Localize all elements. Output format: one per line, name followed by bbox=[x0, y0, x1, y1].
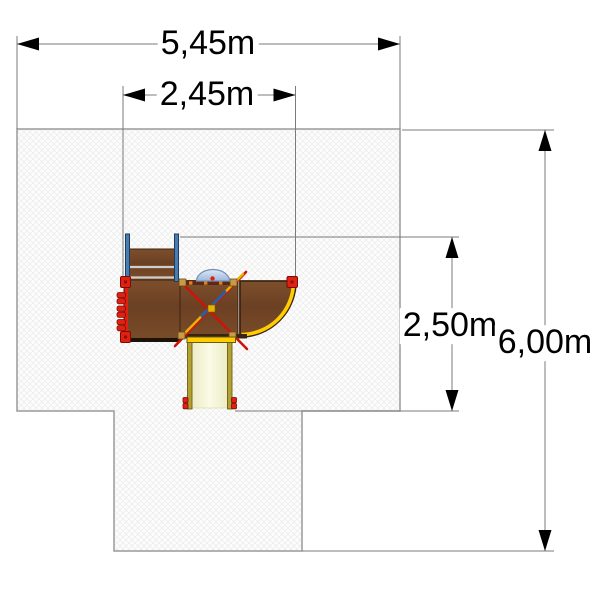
arrow-right-245-icon bbox=[274, 89, 296, 102]
arrow-down-250-icon bbox=[446, 390, 459, 411]
dimension-drawing bbox=[0, 0, 600, 600]
dim-label-structure-width: 2,45m bbox=[157, 77, 258, 113]
slide-foot bbox=[183, 398, 188, 403]
corner-plate bbox=[230, 279, 237, 286]
ladder-rail-right bbox=[175, 234, 179, 282]
arrow-left-245-icon bbox=[123, 89, 145, 102]
left-deck bbox=[124, 279, 180, 341]
arrow-right-545-icon bbox=[378, 38, 400, 51]
handle-knob bbox=[117, 312, 126, 317]
dim-label-total-depth: 6,00m bbox=[495, 325, 596, 361]
rail-clip bbox=[219, 281, 222, 284]
plan-canvas: 5,45m 2,45m 2,50m 6,00m bbox=[0, 0, 600, 600]
rail-clip bbox=[204, 281, 207, 284]
slide-foot bbox=[183, 404, 188, 409]
dim-label-total-width: 5,45m bbox=[158, 26, 259, 62]
dim-label-structure-depth: 2,50m bbox=[400, 308, 501, 344]
corner-plate bbox=[178, 332, 185, 339]
arrow-left-545-icon bbox=[17, 38, 39, 51]
arrow-up-600-icon bbox=[539, 130, 552, 151]
slide-entry-bar bbox=[187, 337, 236, 343]
corner-plate bbox=[179, 279, 186, 286]
slide-foot bbox=[232, 398, 237, 403]
arrow-up-250-icon bbox=[446, 237, 459, 258]
slide-bed bbox=[192, 342, 228, 408]
post-bolt bbox=[291, 281, 294, 284]
rail-clip bbox=[189, 281, 192, 284]
ladder-rail-left bbox=[126, 234, 130, 282]
slide bbox=[183, 337, 237, 409]
handle-knob bbox=[117, 320, 126, 325]
post-bolt bbox=[124, 336, 127, 339]
dome-cap bbox=[210, 276, 214, 280]
arrow-down-600-icon bbox=[539, 530, 552, 551]
slide-foot bbox=[232, 404, 237, 409]
ladder-steps bbox=[129, 249, 178, 280]
handle-knob bbox=[117, 306, 126, 311]
brace-center-plate bbox=[208, 305, 215, 312]
handle-knob bbox=[117, 293, 126, 298]
post-bolt bbox=[124, 281, 127, 284]
left-deck-bottom-edge bbox=[128, 338, 180, 342]
handle-knob bbox=[117, 299, 126, 304]
handle-knob bbox=[117, 326, 126, 331]
